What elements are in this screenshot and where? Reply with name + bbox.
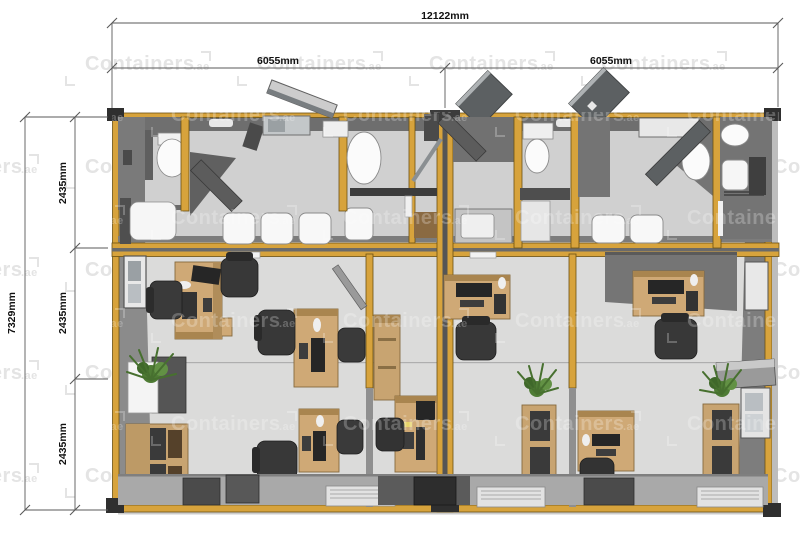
svg-text:7329mm: 7329mm xyxy=(6,292,18,334)
svg-text:12122mm: 12122mm xyxy=(421,10,469,22)
svg-text:6055mm: 6055mm xyxy=(257,55,299,67)
svg-text:2435mm: 2435mm xyxy=(57,162,69,204)
svg-text:6055mm: 6055mm xyxy=(590,55,632,67)
svg-text:2435mm: 2435mm xyxy=(57,292,69,334)
svg-text:2435mm: 2435mm xyxy=(57,423,69,465)
